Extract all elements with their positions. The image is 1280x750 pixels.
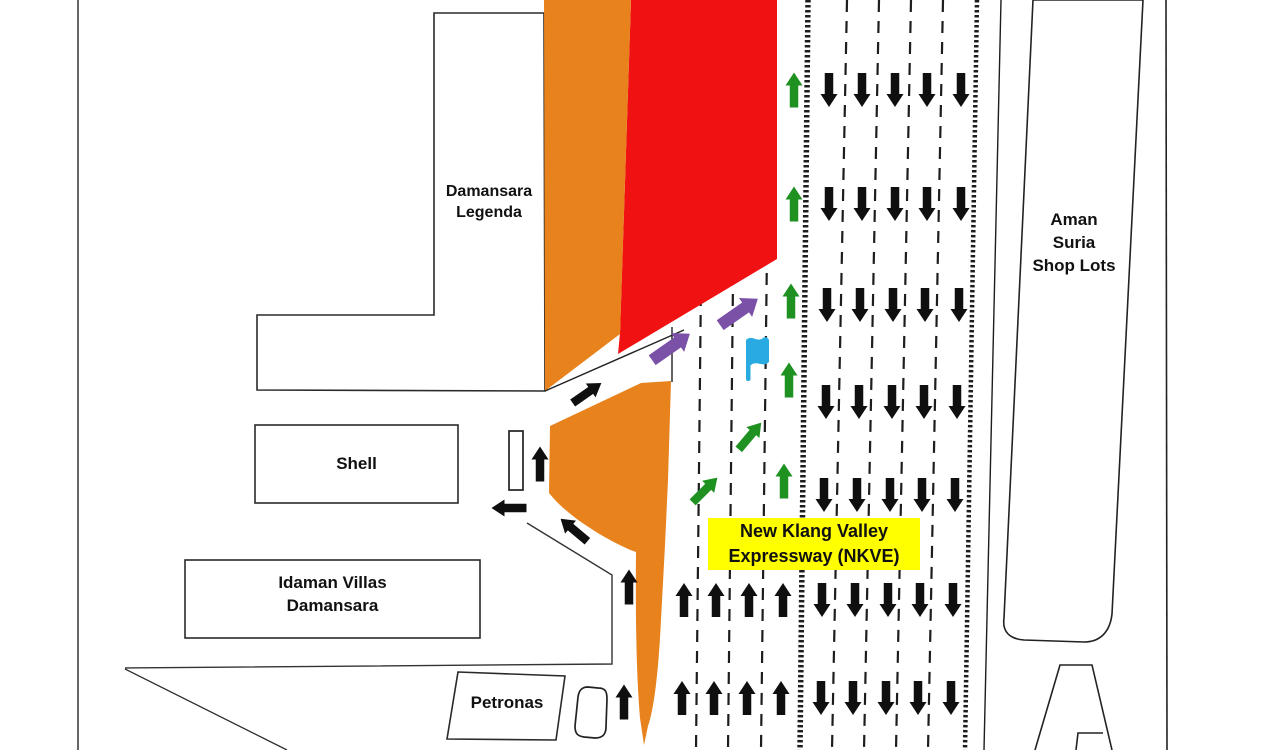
southbound-down-arrow-icon (847, 583, 864, 617)
southbound-down-arrow-icon (947, 478, 964, 512)
northbound-green-arrow-icon (786, 73, 803, 108)
median-divider-line (800, 0, 808, 750)
northbound-up-arrow-icon (773, 681, 790, 715)
ramp-black-arrow-icon (492, 500, 527, 517)
southbound-down-arrow-icon (916, 385, 933, 419)
southbound-down-arrow-icon (854, 73, 871, 107)
damansara-legenda-line1: Damansara (437, 181, 541, 202)
northbound-up-arrow-icon (706, 681, 723, 715)
northbound-green-arrow-icon (732, 417, 768, 455)
northbound-up-arrow-icon (676, 583, 693, 617)
damansara-legenda-label: Damansara Legenda (437, 181, 541, 223)
southbound-down-arrow-icon (814, 583, 831, 617)
southbound-lane-dash-4 (928, 0, 943, 750)
petronas-label: Petronas (450, 693, 564, 713)
southbound-down-arrow-icon (854, 187, 871, 221)
lane-island-rect (509, 431, 523, 490)
southbound-down-arrow-icon (912, 583, 929, 617)
ramp-black-arrow-icon (616, 685, 633, 720)
southbound-down-arrow-icon (914, 478, 931, 512)
merge-purple-arrow-icon (714, 289, 765, 334)
southbound-down-arrow-icon (851, 385, 868, 419)
idaman-villas-line1: Idaman Villas (185, 571, 480, 594)
northbound-up-arrow-icon (739, 681, 756, 715)
southbound-down-arrow-icon (917, 288, 934, 322)
orange-ramp-gore (549, 381, 671, 745)
nkve-line1: New Klang Valley (708, 519, 920, 544)
aman-suria-parcel-outline (1004, 0, 1143, 642)
location-flag-icon (746, 337, 769, 381)
southbound-down-arrow-icon (880, 583, 897, 617)
nkve-line2: Expressway (NKVE) (708, 544, 920, 569)
east-parcels (1004, 0, 1167, 750)
flag-pole (746, 340, 751, 381)
northbound-green-arrow-icon (783, 284, 800, 319)
southbound-down-arrow-icon (813, 681, 830, 715)
northbound-up-arrow-icon (708, 583, 725, 617)
idaman-villas-line2: Damansara (185, 594, 480, 617)
southbound-down-arrow-icon (919, 187, 936, 221)
traffic-island-outline (575, 687, 607, 738)
southbound-down-arrow-icon (919, 73, 936, 107)
northbound-up-arrow-icon (741, 583, 758, 617)
ramp-black-arrow-icon (532, 447, 549, 482)
northbound-green-arrow-icon (687, 472, 724, 509)
southbound-down-arrow-icon (910, 681, 927, 715)
southbound-down-arrow-icon (953, 73, 970, 107)
southbound-down-arrow-icon (878, 681, 895, 715)
northbound-green-arrow-icon (781, 363, 798, 398)
southbound-down-arrow-icon (887, 73, 904, 107)
site-location-map: Damansara Legenda Shell Idaman Villas Da… (0, 0, 1280, 750)
orange-plot-upper (544, 0, 631, 391)
southbound-down-arrow-icon (818, 385, 835, 419)
shell-label: Shell (255, 425, 458, 503)
southbound-down-arrow-icon (949, 385, 966, 419)
southbound-down-arrow-icon (816, 478, 833, 512)
southbound-lane-dash-2 (864, 0, 879, 750)
ramp-black-arrow-icon (621, 570, 638, 605)
southbound-down-arrow-icon (887, 187, 904, 221)
southbound-lane-dash-1 (832, 0, 847, 750)
west-parcels (78, 0, 612, 750)
southbound-down-arrow-icon (849, 478, 866, 512)
south-parcel-outline (1035, 665, 1112, 750)
idaman-villas-label: Idaman Villas Damansara (185, 571, 480, 617)
southbound-down-arrow-icon (945, 583, 962, 617)
southbound-down-arrow-icon (882, 478, 899, 512)
service-road-line (984, 0, 1001, 750)
expressway-east-edge-line (965, 0, 977, 750)
northbound-up-arrow-icon (674, 681, 691, 715)
northbound-green-arrow-icon (776, 464, 793, 499)
nkve-highlight-label: New Klang Valley Expressway (NKVE) (708, 518, 920, 570)
southbound-down-arrow-icon (884, 385, 901, 419)
northbound-green-arrow-icon (786, 187, 803, 222)
northbound-up-arrow-icon (775, 583, 792, 617)
southbound-down-arrow-icon (885, 288, 902, 322)
southbound-down-arrow-icon (953, 187, 970, 221)
southbound-down-arrow-icon (819, 288, 836, 322)
southbound-down-arrow-icon (852, 288, 869, 322)
damansara-legenda-line2: Legenda (437, 202, 541, 223)
southbound-down-arrow-icon (845, 681, 862, 715)
aman-suria-line1: Aman (1019, 208, 1129, 231)
aman-suria-line3: Shop Lots (1019, 254, 1129, 277)
southbound-down-arrow-icon (951, 288, 968, 322)
southbound-down-arrow-icon (821, 187, 838, 221)
aman-suria-line2: Suria (1019, 231, 1129, 254)
aman-suria-label: Aman Suria Shop Lots (1019, 208, 1129, 277)
southbound-down-arrow-icon (821, 73, 838, 107)
map-drawing (0, 0, 1280, 750)
southbound-down-arrow-icon (943, 681, 960, 715)
southbound-lane-dash-3 (896, 0, 911, 750)
east-boundary-line (1166, 0, 1167, 750)
development-plots (544, 0, 777, 745)
